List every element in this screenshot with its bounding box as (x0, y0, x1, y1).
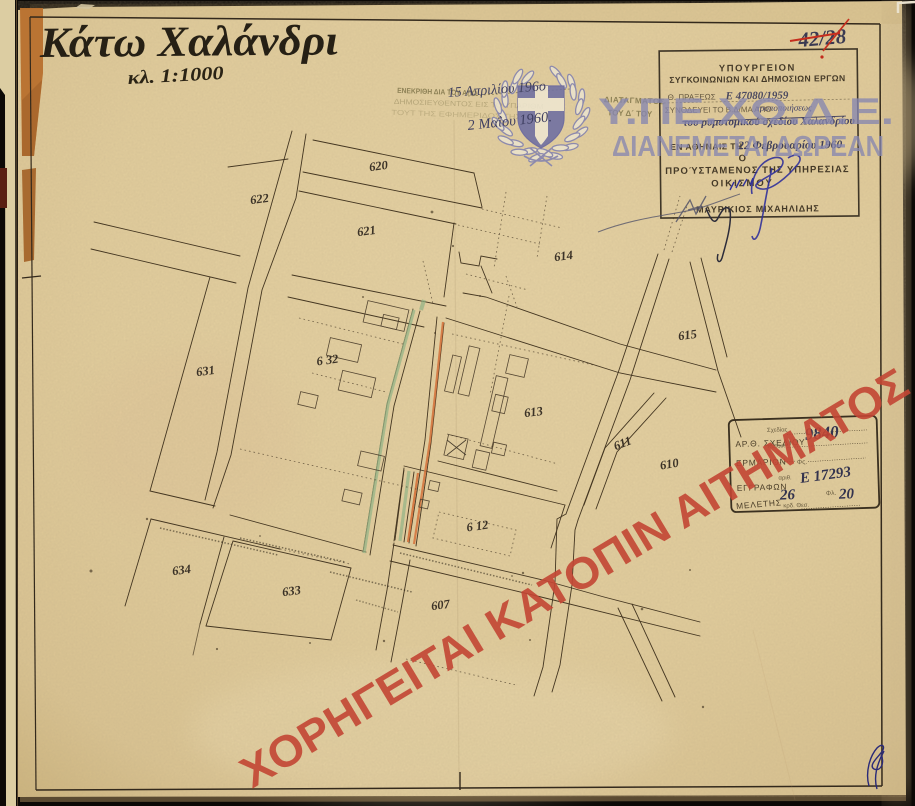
svg-text:ΥΠΟΥΡΓΕΙΟΝ: ΥΠΟΥΡΓΕΙΟΝ (719, 63, 796, 75)
svg-text:Φλ.: Φλ. (826, 490, 837, 497)
svg-text:633: 633 (281, 583, 302, 599)
svg-text:613: 613 (523, 404, 544, 420)
svg-text:620: 620 (368, 158, 389, 175)
svg-text:631: 631 (195, 363, 216, 379)
svg-text:ΟΙΚΙΣΜΟΥ: ΟΙΚΙΣΜΟΥ (711, 178, 774, 190)
svg-text:614: 614 (553, 248, 574, 264)
svg-text:634: 634 (171, 562, 192, 578)
svg-text:Υ.ΠΕ.ΧΩ.Δ.Ε.: Υ.ΠΕ.ΧΩ.Δ.Ε. (598, 91, 894, 132)
svg-text:20: 20 (838, 486, 855, 503)
svg-text:ΜΑΥΡΙΚΙΟΣ ΜΙΧΑΗΛΙΔΗΣ: ΜΑΥΡΙΚΙΟΣ ΜΙΧΑΗΛΙΔΗΣ (696, 203, 820, 214)
svg-text:621: 621 (356, 223, 377, 239)
svg-text:ΔΙΑΝΕΜΕΤΑΙ ΔΩΡΕΑΝ: ΔΙΑΝΕΜΕΤΑΙ ΔΩΡΕΑΝ (612, 131, 884, 163)
svg-text:ΣΥΓΚΟΙΝΩΝΙΩΝ ΚΑΙ ΔΗΜΟΣΙΩΝ ΕΡΓΩ: ΣΥΓΚΟΙΝΩΝΙΩΝ ΚΑΙ ΔΗΜΟΣΙΩΝ ΕΡΓΩΝ (669, 73, 845, 85)
svg-text:Κάτω Χαλάνδρι: Κάτω Χαλάνδρι (39, 17, 338, 67)
svg-text:κρδ. Θεσ.: κρδ. Θεσ. (783, 503, 809, 510)
svg-text:615: 615 (677, 327, 698, 343)
svg-text:622: 622 (249, 191, 270, 207)
svg-text:607: 607 (430, 597, 451, 614)
